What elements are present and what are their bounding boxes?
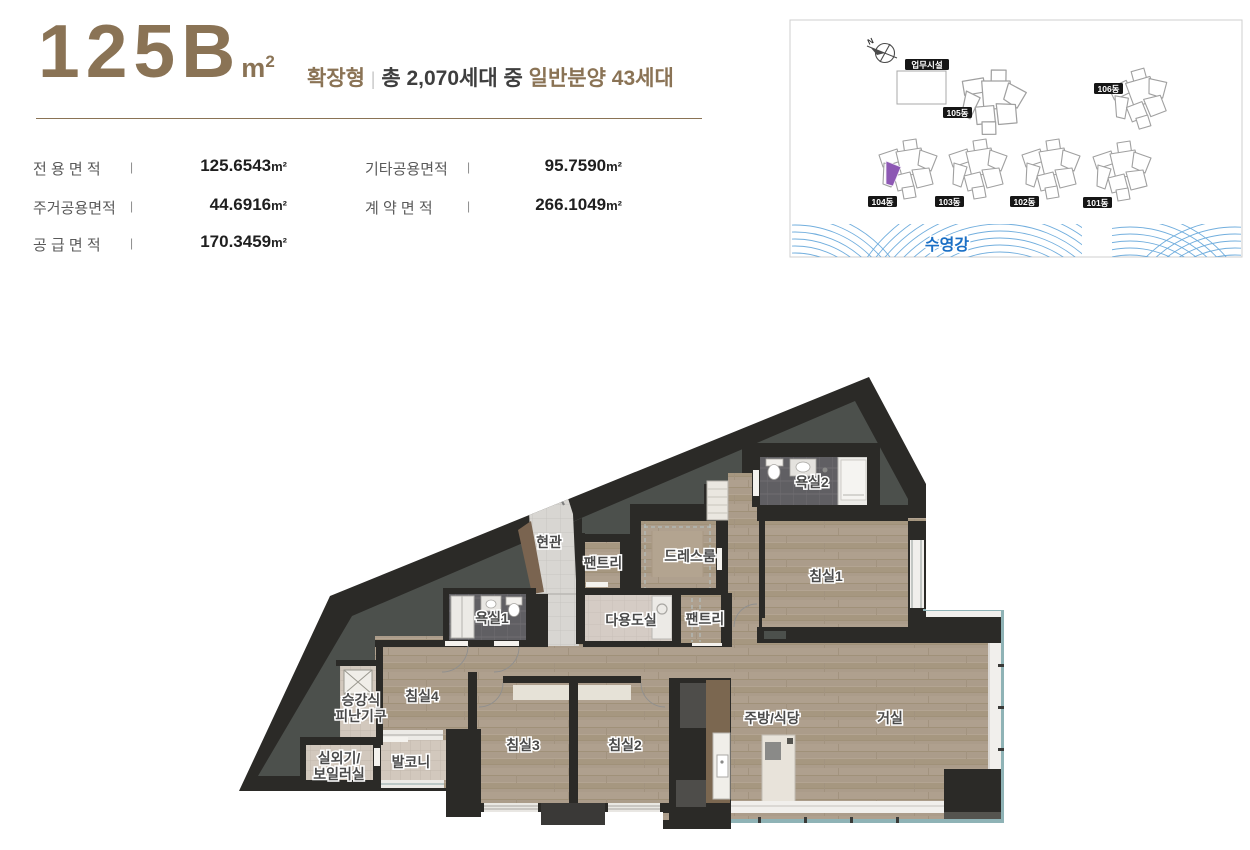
svg-text:업무시설: 업무시설: [911, 60, 942, 70]
svg-text:발코니: 발코니: [392, 754, 431, 770]
svg-text:팬트리: 팬트리: [584, 555, 623, 571]
svg-text:현관: 현관: [536, 534, 562, 550]
svg-text:101동: 101동: [1086, 198, 1108, 208]
svg-text:침실2: 침실2: [608, 737, 642, 753]
svg-text:욕실1: 욕실1: [475, 610, 509, 626]
svg-text:104동: 104동: [871, 197, 893, 207]
svg-text:실외기/: 실외기/: [318, 750, 361, 766]
svg-text:102동: 102동: [1013, 197, 1035, 207]
svg-text:거실: 거실: [877, 710, 903, 726]
svg-text:103동: 103동: [938, 197, 960, 207]
svg-text:승강식: 승강식: [342, 692, 381, 708]
svg-text:드레스룸: 드레스룸: [664, 548, 716, 564]
svg-text:침실1: 침실1: [809, 568, 843, 584]
svg-text:106동: 106동: [1097, 84, 1119, 94]
svg-text:침실4: 침실4: [405, 688, 439, 704]
svg-text:수영강: 수영강: [925, 236, 969, 254]
svg-text:다용도실: 다용도실: [605, 612, 657, 628]
svg-text:보일러실: 보일러실: [313, 766, 365, 782]
svg-text:피난기구: 피난기구: [335, 708, 387, 724]
svg-text:침실3: 침실3: [506, 737, 540, 753]
svg-text:팬트리: 팬트리: [686, 611, 725, 627]
svg-text:욕실2: 욕실2: [795, 474, 829, 490]
svg-text:105동: 105동: [946, 108, 968, 118]
svg-text:주방/식당: 주방/식당: [744, 710, 800, 726]
